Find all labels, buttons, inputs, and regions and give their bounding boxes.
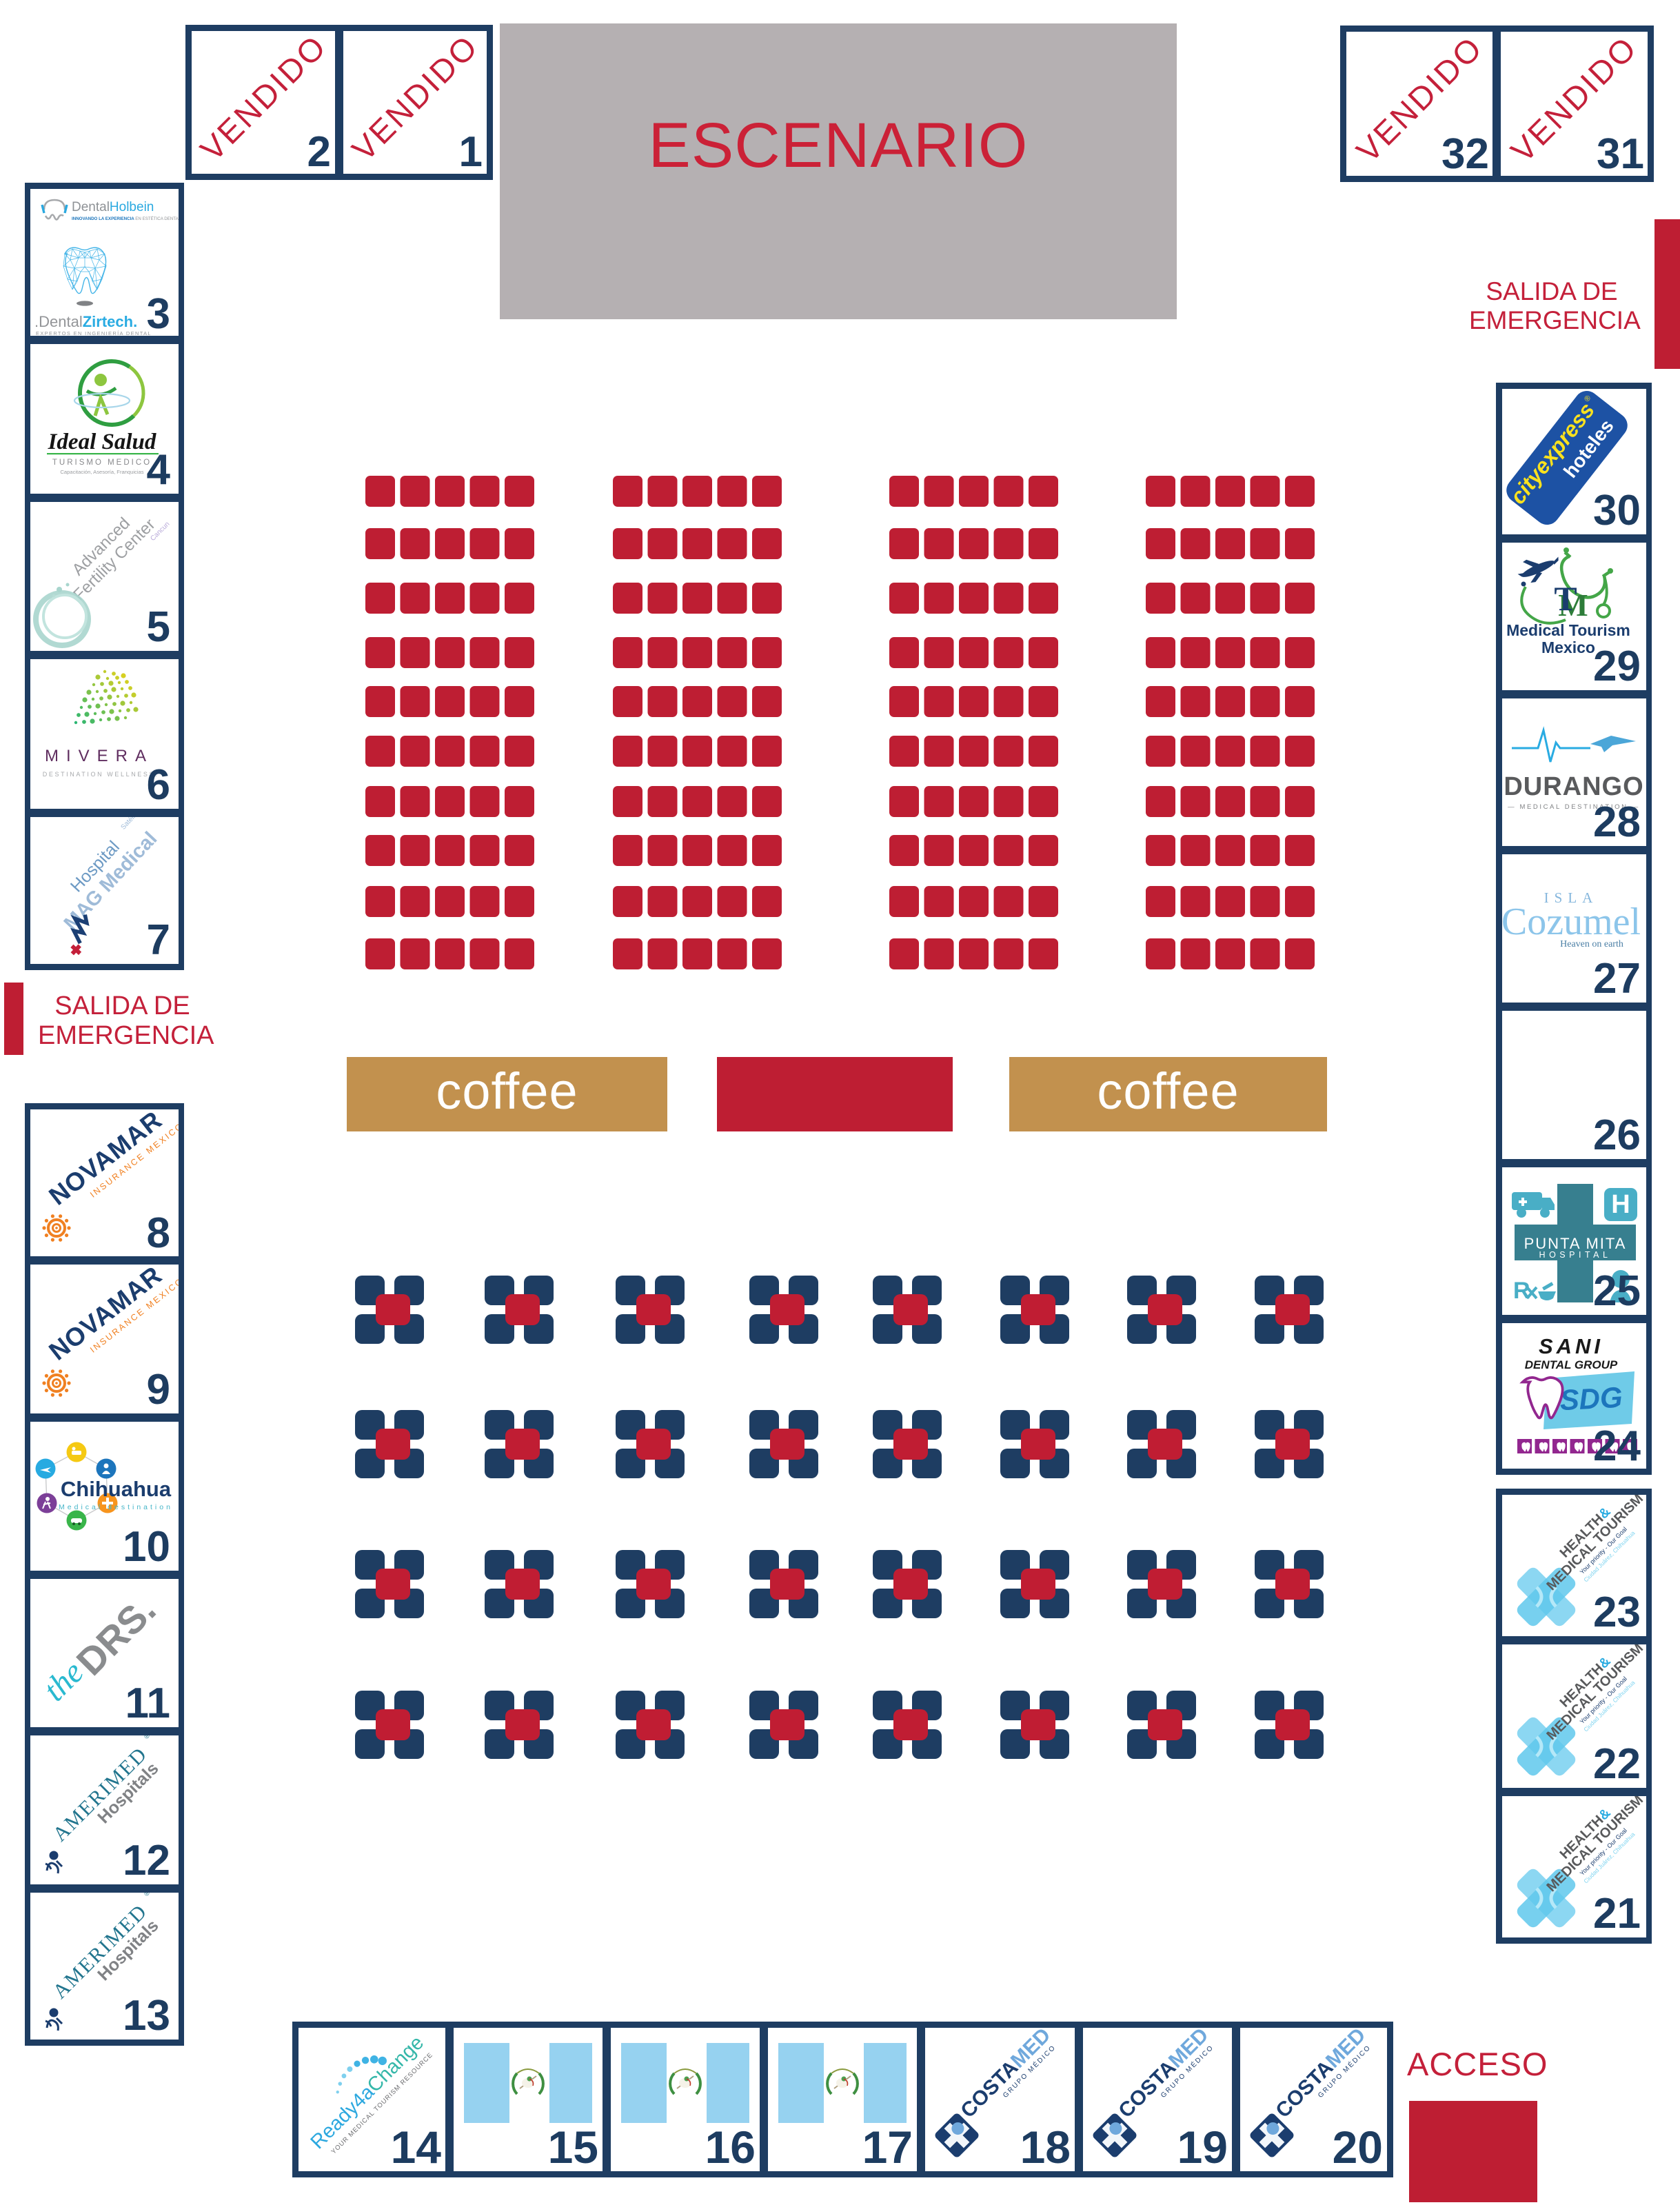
svg-text:Medical Tourism: Medical Tourism [1506,621,1630,639]
svg-text:MEDICAL TOURISM: MEDICAL TOURISM [1544,1644,1646,1743]
svg-text:®: ® [143,1893,152,1898]
svg-text:DURANGO: DURANGO [1504,772,1643,801]
svg-text:Heaven on earth: Heaven on earth [1560,939,1623,949]
svg-text:EXPERTOS EN INGENIERÍA DENTAL: EXPERTOS EN INGENIERÍA DENTAL [36,330,152,336]
svg-text:H: H [1611,1190,1630,1219]
svg-text:HOSPITAL: HOSPITAL [1539,1250,1612,1260]
svg-text:NOVAMAR: NOVAMAR [43,1265,167,1366]
svg-text:DentalHolbein: DentalHolbein [72,200,154,214]
svg-text:R: R [1513,1278,1530,1304]
svg-text:DESTINATION WELLNESS.: DESTINATION WELLNESS. [43,771,159,778]
svg-text:NOVAMAR: NOVAMAR [43,1109,167,1211]
svg-text:COSTAMED: COSTAMED [1114,2028,1213,2122]
svg-text:MIVERA: MIVERA [45,747,154,765]
svg-text:DENTAL GROUP: DENTAL GROUP [1525,1358,1618,1371]
svg-text:MEDICAL TOURISM: MEDICAL TOURISM [1544,1495,1646,1593]
svg-text:SANI: SANI [1539,1334,1603,1358]
svg-text:Medical destination: Medical destination [59,1503,173,1511]
svg-text:TURISMO MEDICO: TURISMO MEDICO [52,459,152,467]
svg-text:COSTAMED: COSTAMED [1271,2028,1370,2122]
svg-text:Chihuahua: Chihuahua [61,1477,172,1501]
svg-text:INNOVANDO LA EXPERIENCIA EN ES: INNOVANDO LA EXPERIENCIA EN ESTÉTICA DEN… [72,217,179,221]
svg-text:Capacitación, Asesoría, Franqu: Capacitación, Asesoría, Franquicias [60,469,143,475]
svg-text:.DentalZirtech.: .DentalZirtech. [34,313,137,330]
svg-text:Mexico: Mexico [1541,638,1595,656]
svg-text:Ideal Salud: Ideal Salud [48,430,156,454]
svg-text:MEDICAL TOURISM: MEDICAL TOURISM [1544,1796,1646,1895]
svg-text:SDG: SDG [1559,1381,1623,1417]
svg-text:DRS.: DRS. [68,1588,164,1684]
svg-text:®: ® [143,1735,152,1741]
svg-text:T: T [1554,579,1577,618]
svg-text:Satélite: Satélite [120,817,141,832]
svg-text:COSTAMED: COSTAMED [956,2028,1055,2122]
svg-text:Cozumel: Cozumel [1502,900,1641,943]
